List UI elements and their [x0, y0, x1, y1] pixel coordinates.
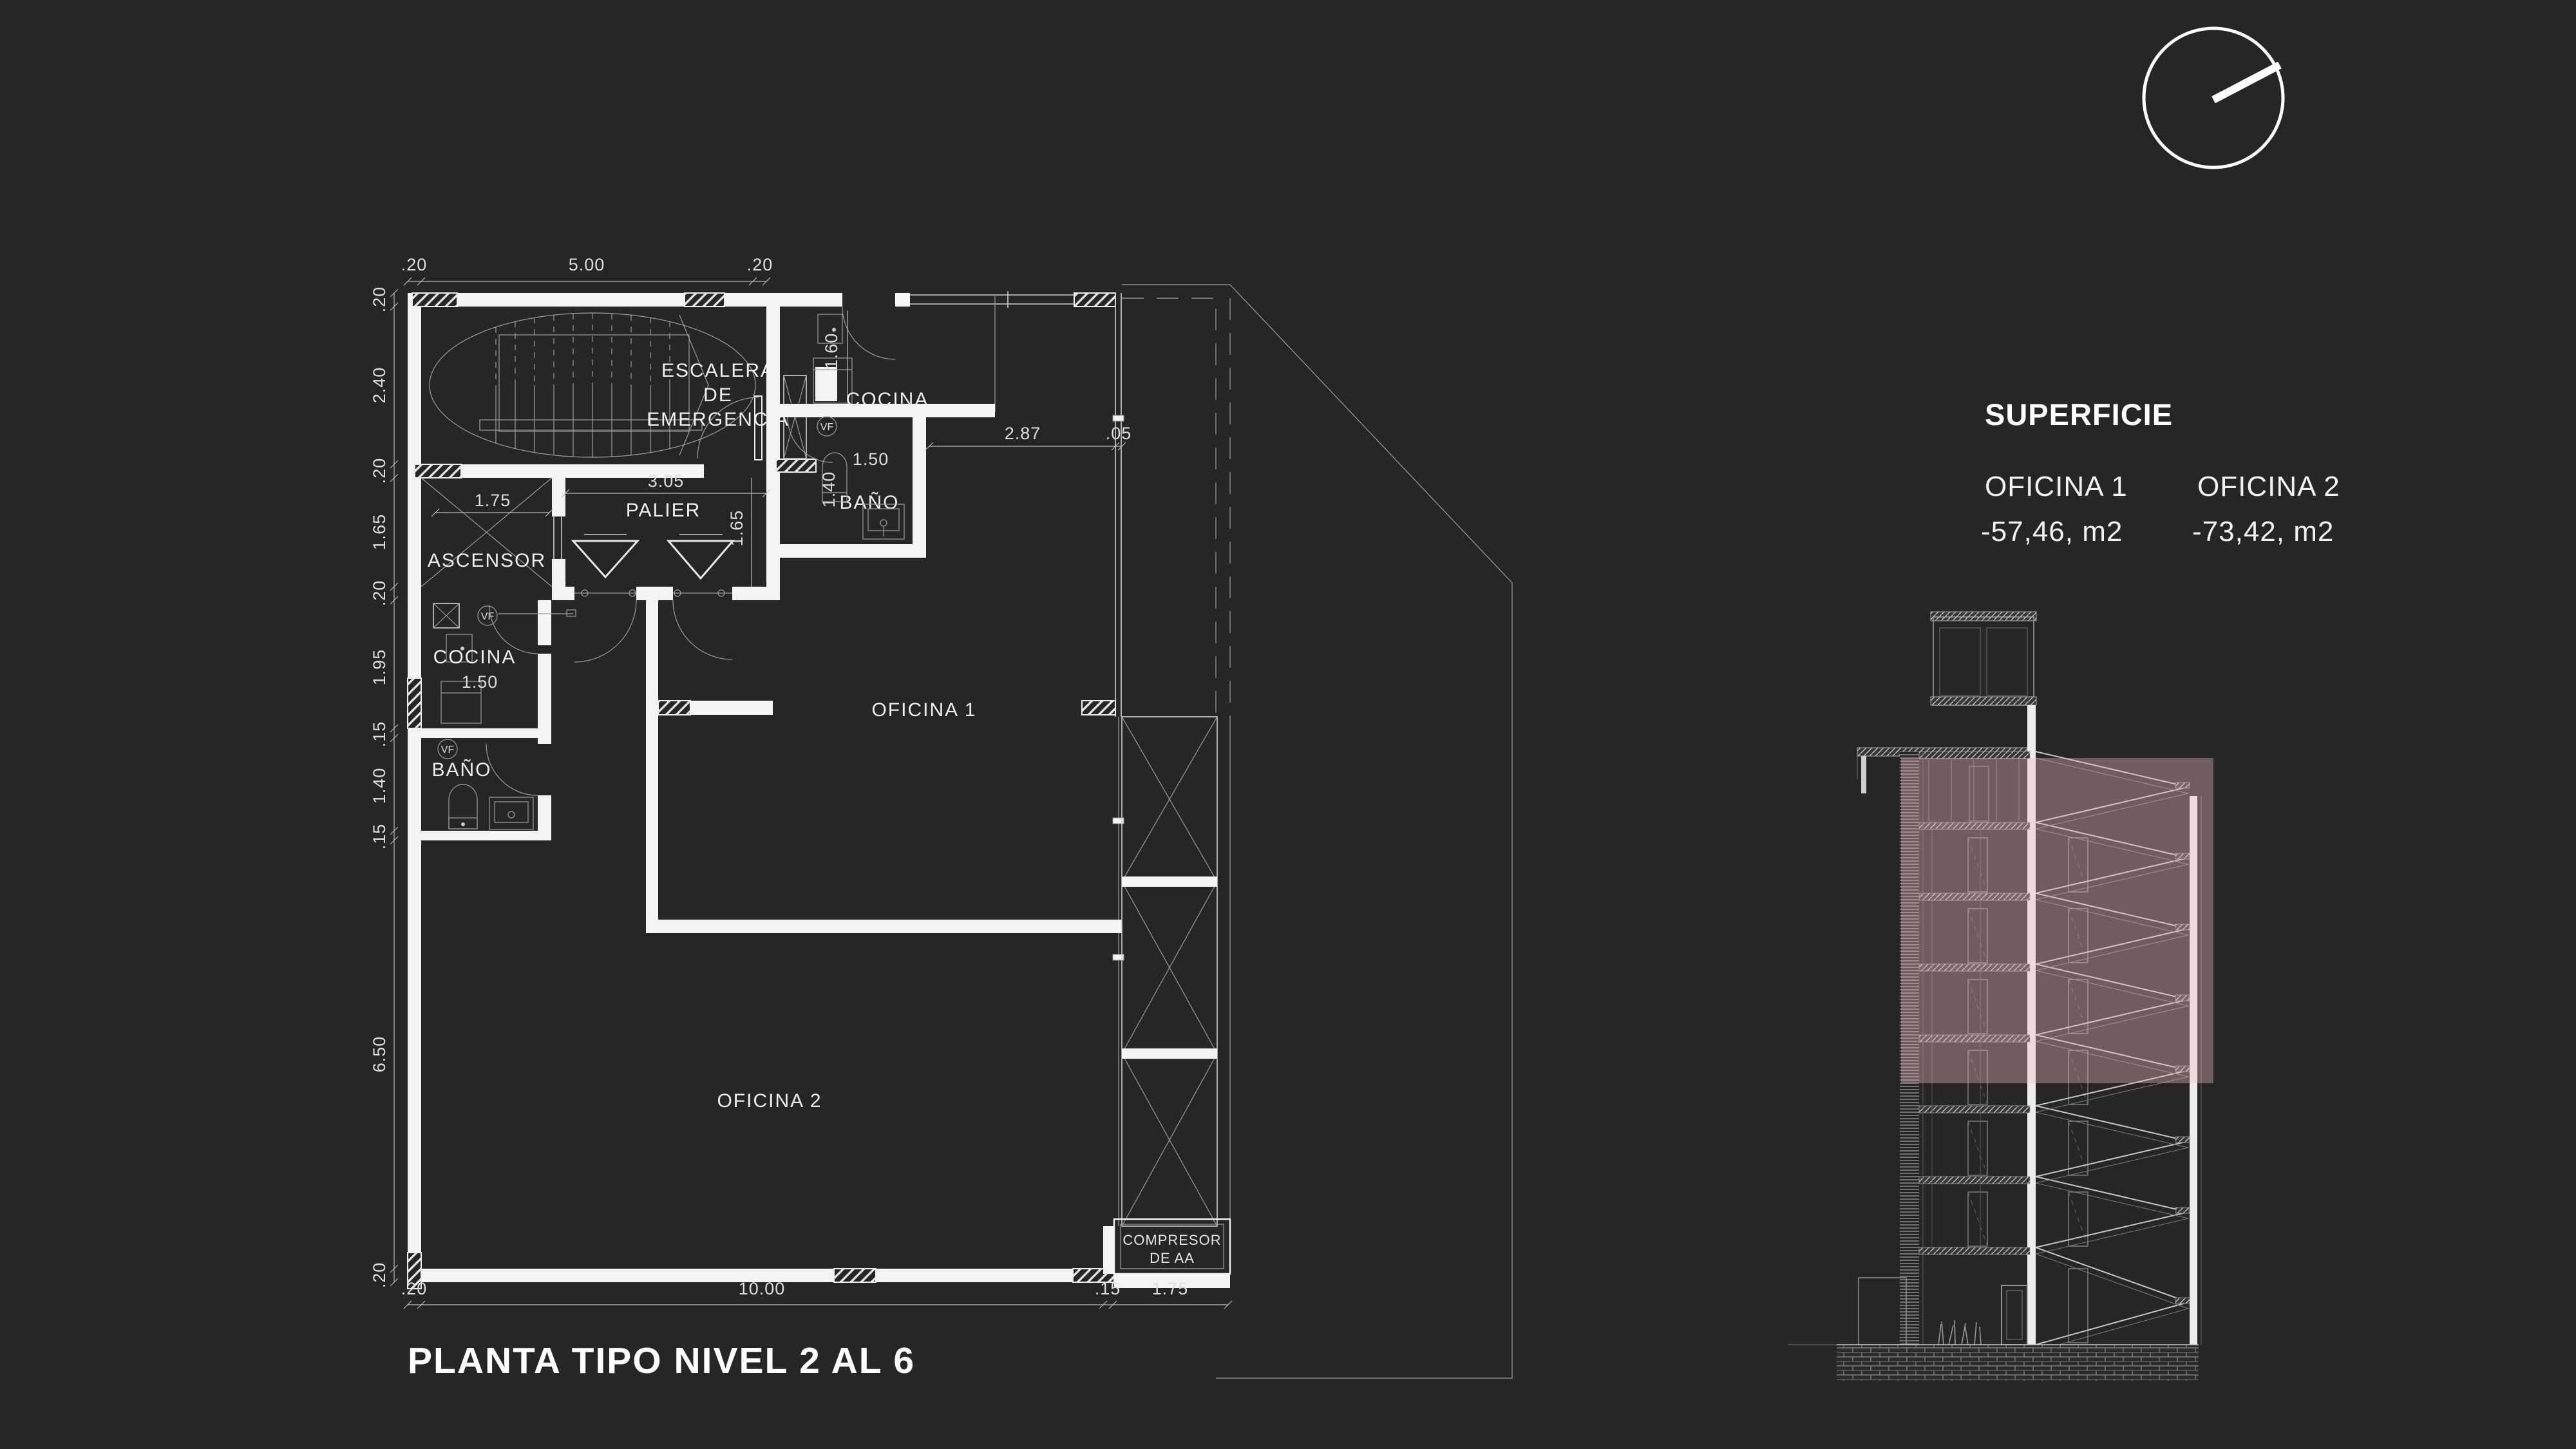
dim-bath-top-width: 1.50 [853, 450, 889, 469]
compressor-label-line2: DE AA [1150, 1250, 1195, 1266]
landing-label: PALIER [626, 500, 701, 521]
dim-left-4: .20 [370, 580, 389, 607]
architectural-sheet: ESCALERA DE EMERGENCIA [0, 0, 2576, 1449]
dim-left-0: .20 [370, 287, 389, 313]
dim-bottom-2: .15 [1095, 1279, 1121, 1298]
dim-left-8: .15 [370, 824, 389, 850]
vf-label: VF [820, 422, 834, 433]
stair-label-line2: DE [703, 384, 733, 406]
dim-left-6: .15 [370, 721, 389, 748]
dim-left-3: 1.65 [370, 514, 389, 551]
sheet-title: PLANTA TIPO NIVEL 2 AL 6 [408, 1340, 915, 1381]
superficie-heading: SUPERFICIE [1985, 397, 2173, 431]
dim-top-1: 5.00 [569, 255, 605, 274]
kitchen-left-label: COCINA [433, 647, 516, 668]
dim-bottom-1: 10.00 [739, 1279, 786, 1298]
vf-label: VF [481, 611, 495, 622]
dim-bottom-0: .20 [401, 1279, 428, 1298]
dim-left-7: 1.40 [370, 768, 389, 804]
bath-top-label: BAÑO [839, 491, 899, 513]
dim-left-9: 6.50 [370, 1036, 389, 1073]
vf-label: VF [441, 744, 455, 755]
dim-left-2: .20 [370, 458, 389, 484]
office1-label: OFICINA 1 [871, 699, 976, 721]
dim-elevator-width: 1.75 [475, 491, 511, 510]
elevator-label: ASCENSOR [428, 550, 546, 571]
office2-label: OFICINA 2 [717, 1090, 822, 1112]
compressor-label-line1: COMPRESOR [1122, 1232, 1221, 1248]
dim-top-0: .20 [401, 255, 428, 274]
dim-bottom-3: 1.75 [1152, 1279, 1189, 1298]
level-highlight-overlay [1901, 758, 2213, 1083]
kitchen-top-label: COCINA [846, 389, 929, 410]
superficie-office1-area: -57,46, m2 [1981, 516, 2123, 547]
dim-landing-width: 3.05 [648, 471, 685, 491]
stair-label-line1: ESCALERA [661, 360, 775, 381]
dim-kitchen-top-depth: 1.60 [822, 333, 841, 370]
dim-kitchen-left-width: 1.50 [462, 672, 498, 692]
dim-office1-width: 2.87 [1005, 424, 1041, 443]
bath-left-label: BAÑO [431, 759, 491, 781]
dim-top-2: .20 [747, 255, 773, 274]
dim-left-5: 1.95 [370, 649, 389, 686]
dim-left-1: 2.40 [370, 367, 389, 404]
superficie-office2-area: -73,42, m2 [2192, 516, 2334, 547]
superficie-office1-name: OFICINA 1 [1985, 471, 2128, 502]
superficie-office2-name: OFICINA 2 [2197, 471, 2340, 502]
dim-left-10: .20 [370, 1262, 389, 1289]
dim-office1-gap: .05 [1106, 424, 1132, 443]
